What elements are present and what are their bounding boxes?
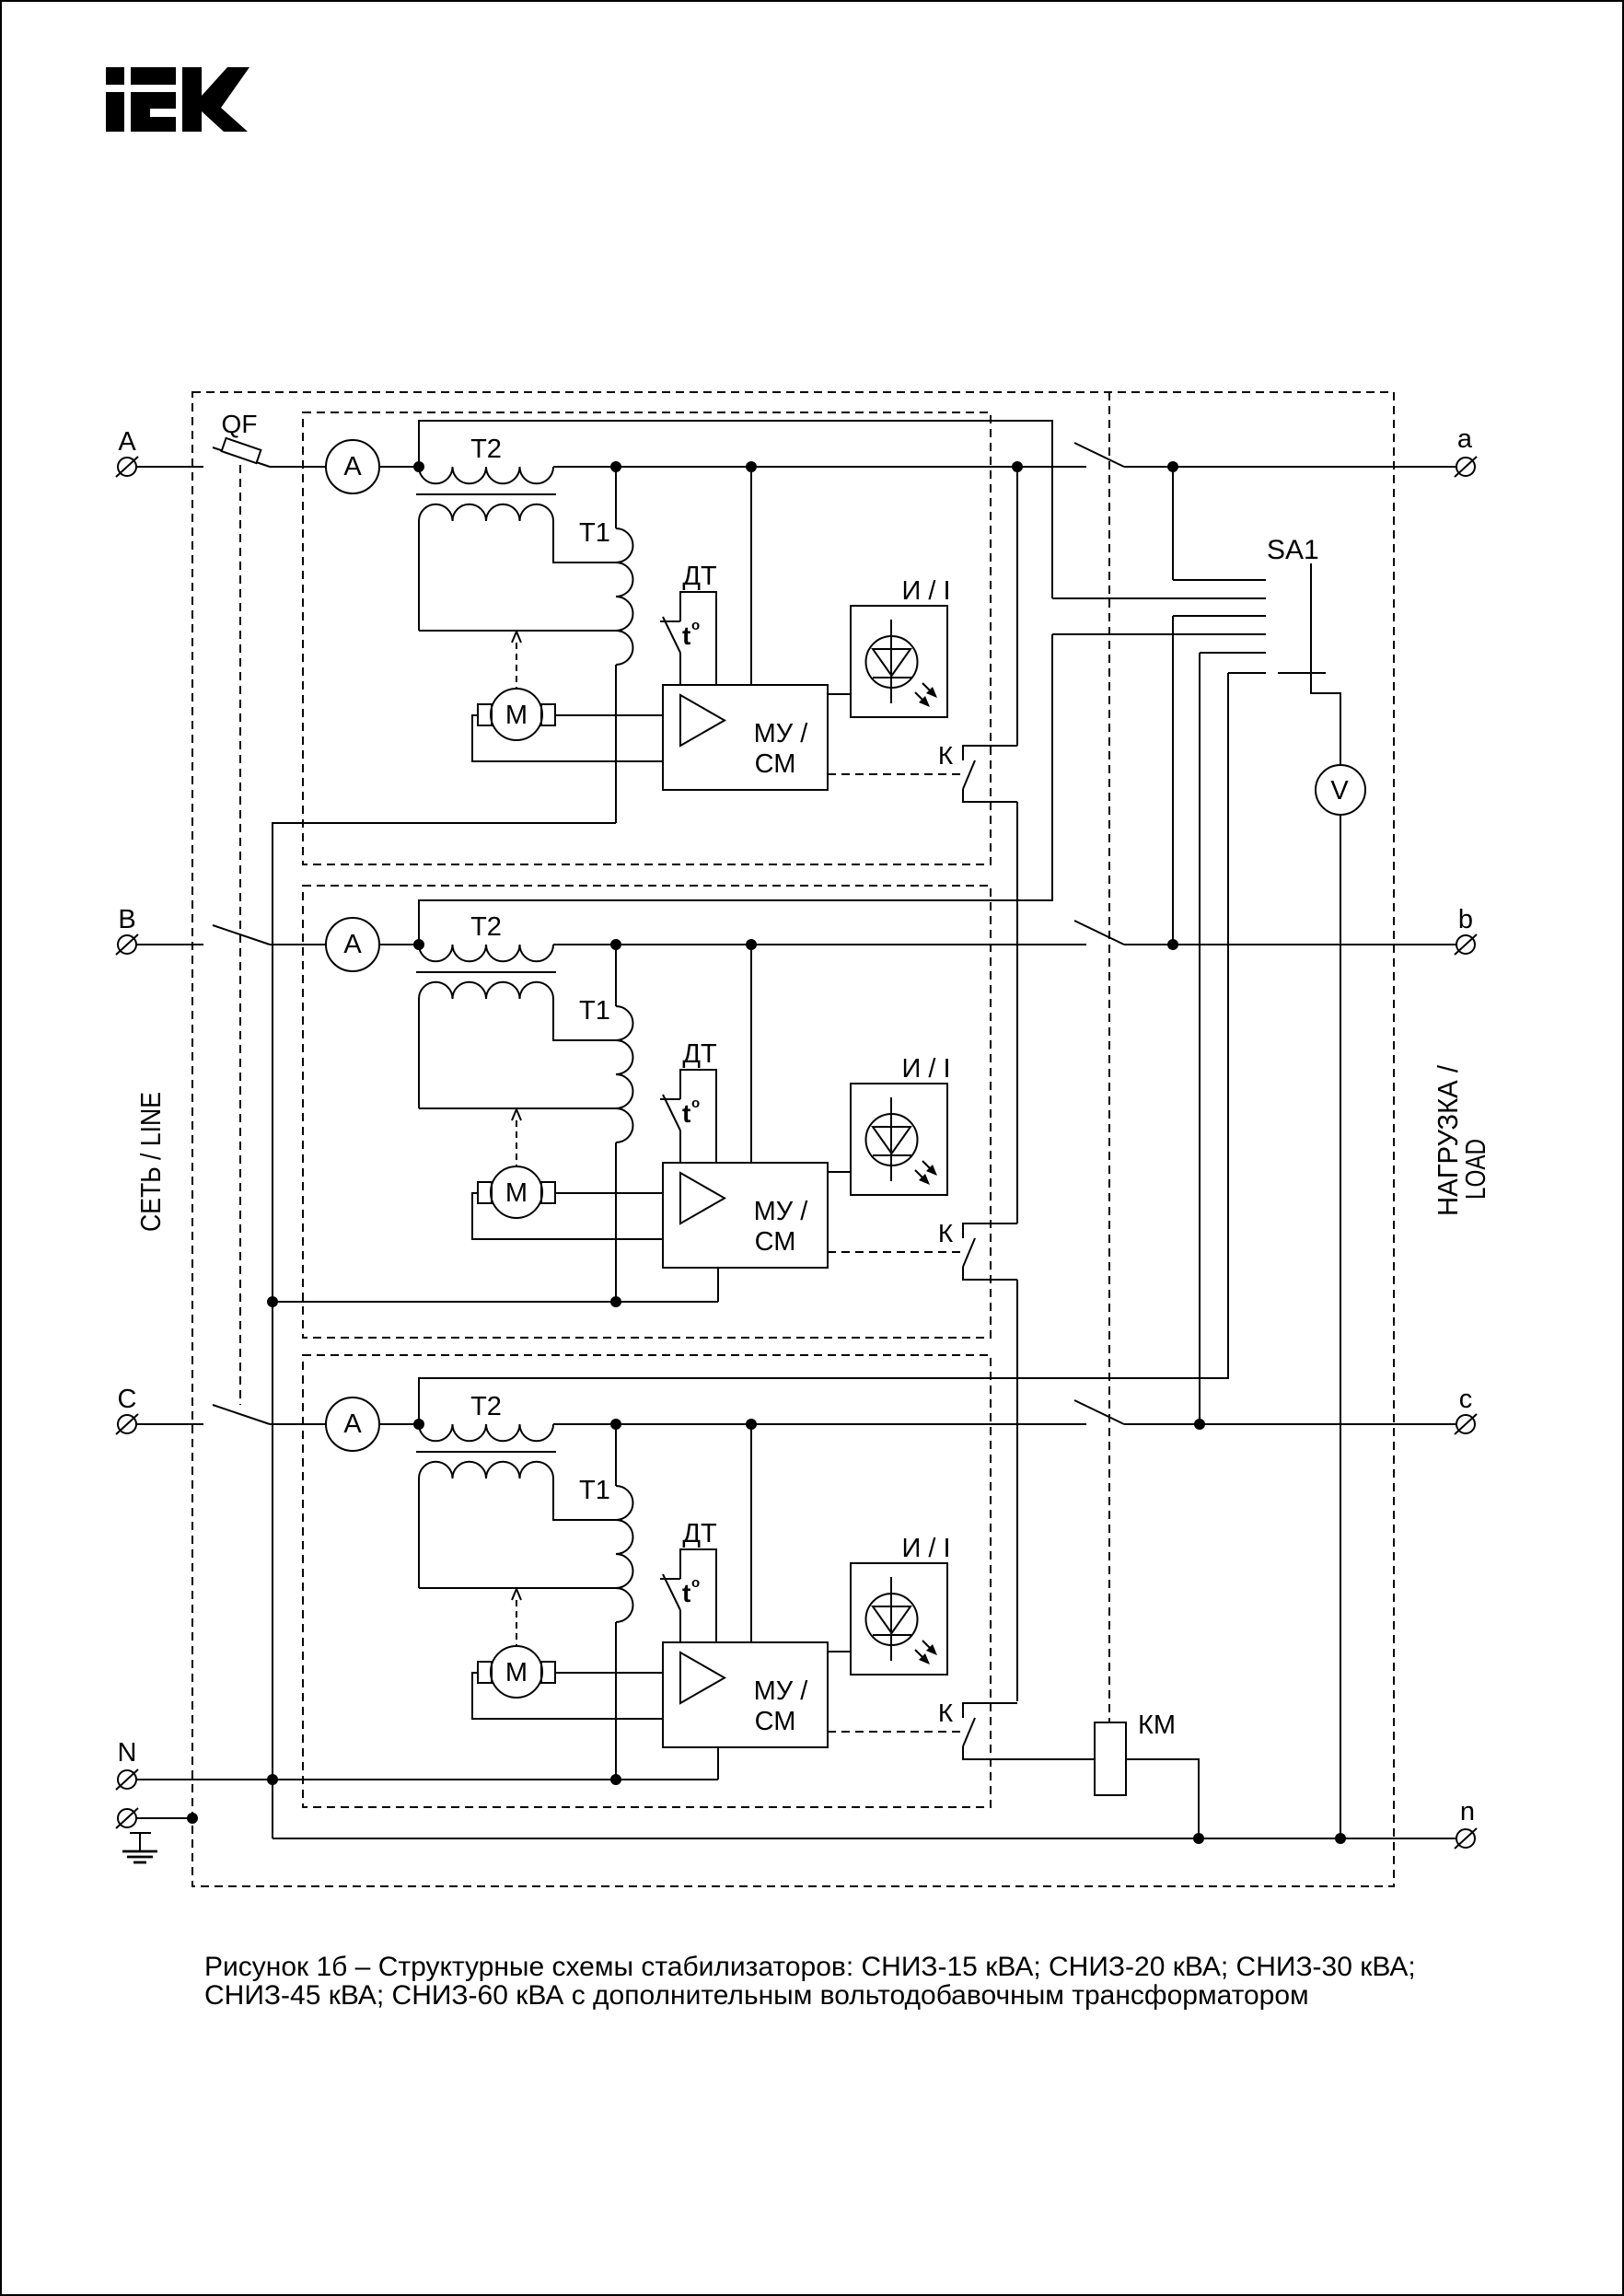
svg-text:Рисунок 1б – Структурные схем: Рисунок 1б – Структурные схемы стабилиза… xyxy=(204,1952,1416,1982)
svg-text:СНИЗ-45 кВА; СНИЗ-60 кВА с доп: СНИЗ-45 кВА; СНИЗ-60 кВА с дополнительны… xyxy=(204,1980,1309,2011)
svg-text:C: C xyxy=(118,1385,137,1414)
svg-text:B: B xyxy=(118,905,135,934)
svg-text:LOAD: LOAD xyxy=(1459,1139,1491,1200)
svg-text:A: A xyxy=(118,427,136,457)
svg-text:V: V xyxy=(1330,776,1349,806)
svg-text:c: c xyxy=(1459,1385,1473,1414)
svg-text:b: b xyxy=(1458,905,1473,934)
svg-text:SA1: SA1 xyxy=(1267,535,1319,565)
svg-text:a: a xyxy=(1457,424,1473,454)
svg-text:СЕТЬ / LINE: СЕТЬ / LINE xyxy=(134,1092,167,1232)
svg-text:n: n xyxy=(1460,1797,1475,1826)
svg-text:КМ: КМ xyxy=(1138,1710,1176,1740)
svg-text:N: N xyxy=(118,1738,137,1768)
svg-text:QF: QF xyxy=(222,410,258,438)
